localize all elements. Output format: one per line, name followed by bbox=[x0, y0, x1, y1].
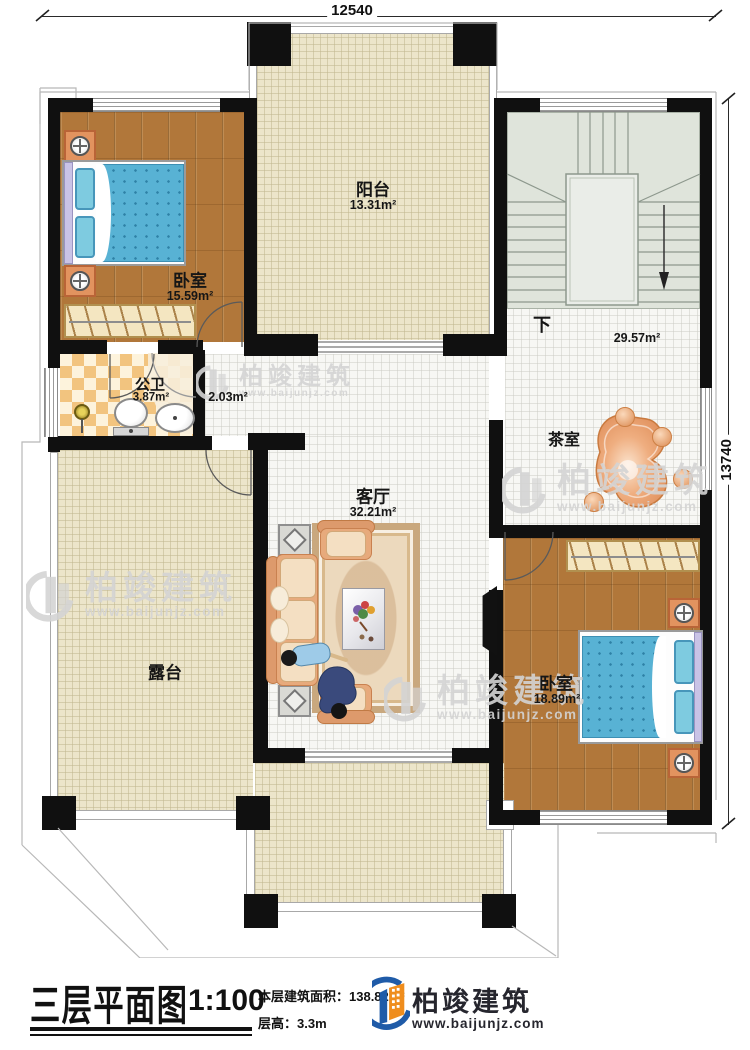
lamp-icon bbox=[70, 136, 90, 156]
room-area-bedroom2: 18.89m² bbox=[534, 693, 581, 706]
closet bbox=[566, 540, 700, 572]
wall-segment bbox=[667, 810, 712, 825]
bed bbox=[578, 630, 703, 744]
window bbox=[93, 98, 220, 112]
throw-pillow bbox=[270, 586, 289, 611]
terrace-railing bbox=[50, 810, 238, 820]
armchair-cushion bbox=[326, 531, 366, 557]
stairwell-floor bbox=[507, 112, 700, 309]
balcony-bottom-railing bbox=[246, 828, 255, 898]
column bbox=[482, 894, 516, 928]
column bbox=[247, 22, 291, 66]
wall-segment bbox=[250, 334, 318, 356]
nightstand bbox=[64, 265, 96, 297]
wall-segment bbox=[193, 350, 205, 438]
room-label-bedroom1: 卧室 bbox=[173, 273, 207, 290]
window bbox=[700, 388, 712, 490]
room-label-bathroom: 公卫 bbox=[135, 378, 165, 393]
wall-segment bbox=[494, 98, 507, 356]
window bbox=[540, 98, 667, 112]
page-title: 三层平面图 bbox=[30, 972, 188, 1033]
lamp-icon bbox=[674, 753, 694, 773]
closet bbox=[64, 304, 196, 338]
room-label-living: 客厅 bbox=[356, 489, 390, 506]
terrace-railing bbox=[50, 452, 58, 818]
wall-segment bbox=[489, 525, 712, 538]
floor-drain-stem bbox=[81, 419, 83, 433]
dimension-right-value: 13740 bbox=[718, 435, 735, 485]
title-block: 三层平面图 1:100 本层建筑面积：138.82m² 层高：3.3m 柏竣建筑… bbox=[0, 958, 750, 1050]
title-underline bbox=[30, 1034, 252, 1036]
stair-landing-floor bbox=[505, 307, 700, 528]
window bbox=[540, 810, 667, 825]
stair-direction-label: 下 bbox=[533, 316, 551, 334]
wall-segment bbox=[489, 420, 503, 527]
column bbox=[244, 894, 278, 928]
brand-url: www.baijunjz.com bbox=[412, 1016, 545, 1031]
room-area-living: 32.21m² bbox=[350, 506, 397, 519]
sink-drain bbox=[173, 416, 177, 420]
floor-height-text: 层高：3.3m bbox=[258, 1013, 327, 1032]
throw-pillow bbox=[270, 618, 289, 643]
wall-segment bbox=[244, 98, 257, 356]
wall-segment bbox=[489, 810, 540, 825]
column bbox=[42, 796, 76, 830]
column bbox=[453, 22, 497, 66]
wall-segment bbox=[48, 340, 107, 354]
armchair bbox=[317, 710, 375, 724]
lamp-icon bbox=[674, 603, 694, 623]
lamp-icon bbox=[70, 271, 90, 291]
room-area-hallway: 2.03m² bbox=[208, 391, 248, 404]
wall-segment bbox=[700, 112, 712, 388]
window bbox=[44, 368, 58, 437]
nightstand bbox=[668, 598, 700, 628]
wall-segment bbox=[48, 98, 60, 368]
brand-logo-icon bbox=[372, 976, 410, 1034]
room-area-balcony: 13.31m² bbox=[350, 199, 397, 212]
column bbox=[236, 796, 270, 830]
balcony-bottom-floor bbox=[255, 763, 504, 908]
balcony-bottom-railing bbox=[246, 902, 512, 912]
side-table bbox=[278, 524, 311, 556]
room-area-stairwell: 29.57m² bbox=[614, 332, 661, 345]
nightstand bbox=[64, 130, 96, 162]
room-label-balcony: 阳台 bbox=[356, 182, 390, 199]
brand-name: 柏竣建筑 bbox=[412, 980, 532, 1019]
terrace-floor bbox=[58, 450, 253, 818]
wall-segment bbox=[253, 748, 305, 763]
sofa-cushion bbox=[280, 642, 316, 682]
room-label-tearoom: 茶室 bbox=[548, 433, 580, 449]
wall-segment bbox=[48, 436, 212, 450]
room-area-bedroom1: 15.59m² bbox=[167, 290, 214, 303]
floor-plan-page: 12540 13740 柏竣建筑 www.baijunjz.com 柏竣建筑 w… bbox=[0, 0, 750, 1050]
dimension-top-value: 12540 bbox=[327, 2, 377, 19]
dimension-line-top bbox=[42, 16, 716, 17]
armchair-cushion bbox=[326, 687, 366, 712]
bed bbox=[62, 160, 186, 266]
title-underline bbox=[30, 1027, 252, 1031]
floor-drain-icon bbox=[74, 404, 90, 420]
side-table bbox=[278, 685, 311, 717]
drawing-scale: 1:100 bbox=[188, 984, 265, 1018]
room-label-terrace: 露台 bbox=[148, 665, 182, 682]
coffee-table bbox=[342, 588, 385, 650]
wall-segment bbox=[452, 748, 502, 763]
room-area-bathroom: 3.87m² bbox=[133, 392, 169, 404]
nightstand bbox=[668, 748, 700, 778]
toilet-button bbox=[129, 429, 133, 433]
room-label-bedroom2: 卧室 bbox=[539, 676, 573, 693]
